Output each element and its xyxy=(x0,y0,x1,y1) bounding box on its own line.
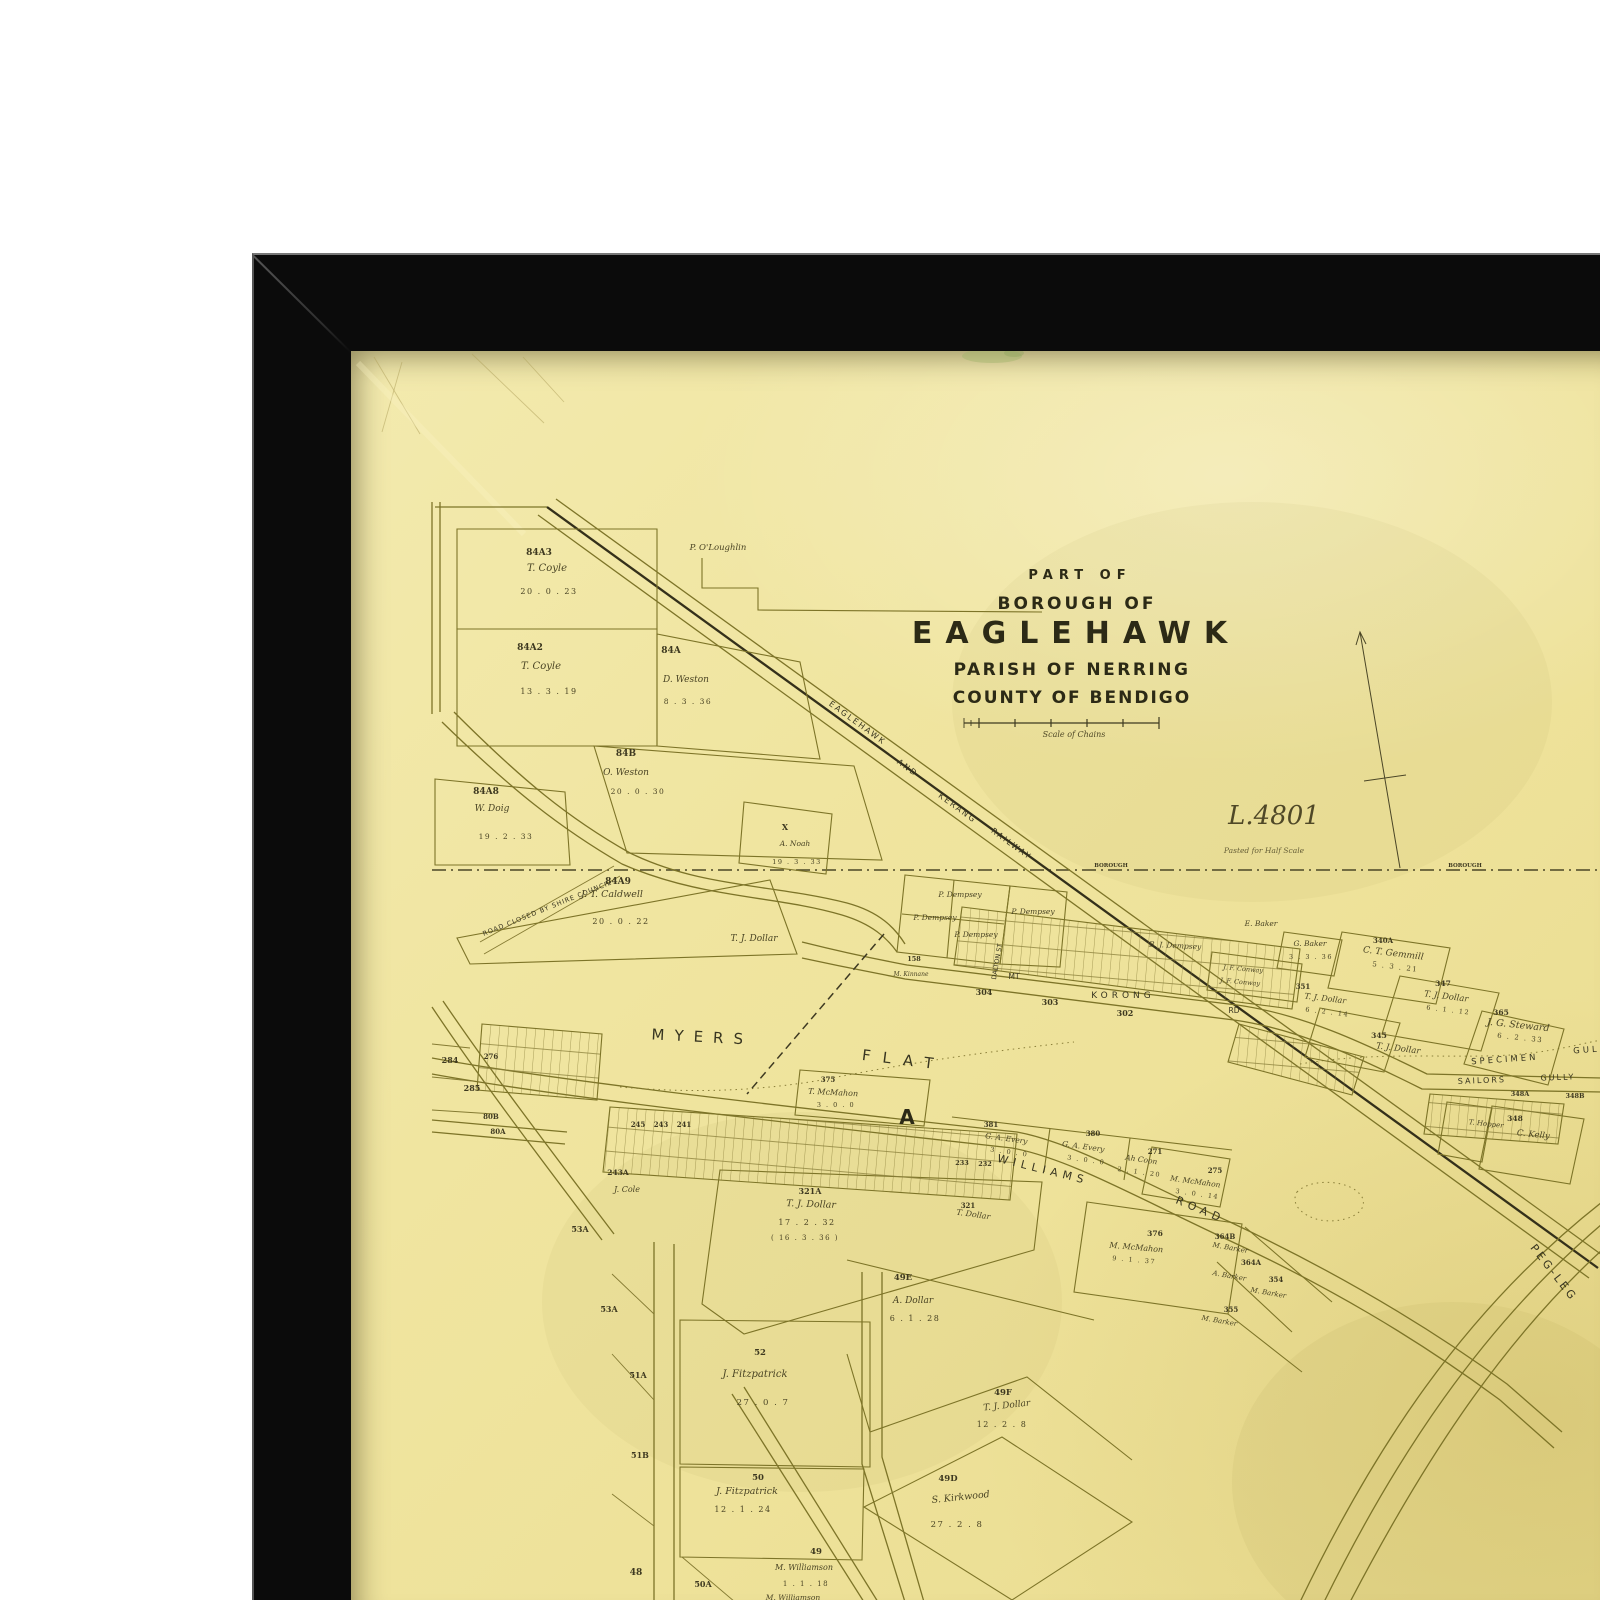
parcel-owner-label: E. Baker xyxy=(1244,919,1278,928)
parcel-owner-label: D. Weston xyxy=(662,675,709,685)
lot-number: 348A xyxy=(1511,1090,1531,1098)
lot-number: 50A xyxy=(694,1579,712,1589)
boundary-label-1: BOROUGH xyxy=(1094,863,1128,869)
lot-number: 364A xyxy=(1241,1258,1262,1267)
picture-frame: PART OF BOROUGH OF EAGLEHAWK PARISH OF N… xyxy=(252,253,1600,1600)
place-myers: MYERS xyxy=(651,1025,753,1048)
parcel-area-label: 3 . 3 . 36 xyxy=(1289,953,1333,961)
lot-number: 302 xyxy=(1117,1008,1134,1018)
boundary-label-2: BOROUGH xyxy=(1448,863,1482,869)
lot-number: 84A3 xyxy=(526,548,552,558)
parcel-owner-label: T. J. Dollar xyxy=(1376,1041,1422,1056)
parcel-owner-label: M. McMahon xyxy=(1108,1241,1164,1255)
place-specimen: SPECIMEN xyxy=(1471,1053,1539,1068)
lot-number: 233 xyxy=(955,1159,969,1167)
road-korong: KORONG xyxy=(1091,991,1155,1001)
parcel-area-label: 27 . 0 . 7 xyxy=(737,1398,790,1408)
lot-number: 345 xyxy=(1371,1031,1387,1040)
road-sailors-gully: GULLY xyxy=(1540,1072,1575,1082)
lot-number: 49D xyxy=(938,1474,958,1484)
parcel-area-label: 1 . 1 . 18 xyxy=(783,1580,829,1588)
parcel-area-label: 12 . 2 . 8 xyxy=(977,1420,1028,1429)
lot-number: 375 xyxy=(821,1075,836,1084)
lot-number: 48 xyxy=(630,1568,643,1578)
road-closed-note: ROAD CLOSED BY SHIRE COUNCIL xyxy=(482,878,613,937)
lot-number: 321 xyxy=(961,1201,976,1210)
parcel-owner-label: M. Williamson xyxy=(765,1593,821,1600)
railway-word-2: AND xyxy=(895,757,919,778)
parcel-area-label: 6 . 2 . 33 xyxy=(1497,1032,1544,1045)
lot-number: 245 xyxy=(631,1120,646,1129)
lot-number: 364B xyxy=(1215,1232,1236,1241)
lot-number: 53A xyxy=(571,1224,589,1234)
lot-number: 84A9 xyxy=(605,877,631,887)
frame-miter-joint xyxy=(253,255,352,353)
parcel-owner-label: P. Dempsey xyxy=(912,913,957,922)
parcel-area-label: 19 . 2 . 33 xyxy=(479,832,534,841)
parcel-area-label: 6 . 1 . 28 xyxy=(890,1314,941,1323)
parcel-area-label: 19 . 3 . 33 xyxy=(772,858,822,866)
lot-number: 348 xyxy=(1507,1114,1523,1123)
lot-number: 355 xyxy=(1224,1305,1239,1314)
parcel-owner-label: T. Coyle xyxy=(521,661,561,672)
lot-number: 49E xyxy=(894,1273,913,1283)
lot-number: 271 xyxy=(1148,1147,1163,1156)
parcel-owner-label: A. Dollar xyxy=(892,1296,934,1306)
map-artwork: PART OF BOROUGH OF EAGLEHAWK PARISH OF N… xyxy=(351,351,1600,1600)
parcel-owner-label: T. Coyle xyxy=(527,563,567,574)
lot-number: 243 xyxy=(654,1120,669,1129)
plan-number-label: L.4801 xyxy=(1227,801,1320,831)
lot-number: 84A xyxy=(661,646,682,656)
parcel-area-label: 20 . 0 . 23 xyxy=(520,587,577,596)
parcel-owner-label: P. Dempsey xyxy=(1010,907,1055,916)
lot-number: 376 xyxy=(1147,1229,1163,1238)
parcel-area-label: 2 . 1 . 20 xyxy=(1117,1165,1162,1179)
lot-number: 381 xyxy=(984,1120,999,1129)
lot-number: 49 xyxy=(810,1547,822,1557)
parcel-owner-label: A. Barker xyxy=(1211,1269,1247,1283)
parcel-owner-label: C. T. Gemmill xyxy=(1362,945,1424,962)
road-mt: MT xyxy=(1008,972,1019,981)
map-paper: PART OF BOROUGH OF EAGLEHAWK PARISH OF N… xyxy=(351,351,1600,1600)
lot-number: 276 xyxy=(484,1052,499,1061)
parcel-area-label: 17 . 2 . 32 xyxy=(778,1218,835,1227)
parcel-area-label: 6 . 2 . 14 xyxy=(1305,1005,1350,1018)
half-scale-note: Pasted for Half Scale xyxy=(1223,846,1305,855)
lot-number: 50 xyxy=(752,1473,764,1483)
map-title-county: COUNTY OF BENDIGO xyxy=(953,688,1191,708)
parcel-owner-label: M. Kinnane xyxy=(892,971,929,978)
map-title-part-of: PART OF xyxy=(1028,568,1131,583)
lot-number: 304 xyxy=(976,987,993,997)
lot-number: 80B xyxy=(483,1112,499,1121)
parcel-owner-label: G. A. Every xyxy=(1062,1139,1106,1154)
parcel-owner-label: J. Fitzpatrick xyxy=(720,1369,787,1380)
lot-number: 351 xyxy=(1296,982,1311,991)
map-title-name: EAGLEHAWK xyxy=(912,616,1240,651)
place-gully: GULLY xyxy=(1573,1044,1600,1057)
lot-number: 158 xyxy=(907,955,921,963)
parcel-owner-label: J. G. Steward xyxy=(1484,1017,1550,1035)
parcel-area-label: 5 . 3 . 21 xyxy=(1372,960,1419,974)
lot-number: 53A xyxy=(600,1304,618,1314)
lot-number: 275 xyxy=(1208,1166,1223,1175)
parcel-area-label: 12 . 1 . 24 xyxy=(714,1505,771,1514)
road-sailors: SAILORS xyxy=(1458,1075,1506,1086)
parcel-owner-label: A. Noah xyxy=(779,839,811,848)
lot-number: 51A xyxy=(629,1370,647,1380)
parcel-owner-label: T. J. Dollar xyxy=(1304,992,1348,1006)
map-title-borough-of: BOROUGH OF xyxy=(998,594,1157,614)
parcel-owner-label: P. Dempsey xyxy=(953,930,998,939)
parcel-owner-label: O. Weston xyxy=(603,768,649,778)
parcel-area-label: 6 . 1 . 12 xyxy=(1426,1003,1471,1016)
parcel-owner-label: M. Barker xyxy=(1211,1241,1249,1255)
parcel-owner-label: S. Kirkwood xyxy=(931,1489,990,1506)
lot-number: 232 xyxy=(978,1160,992,1168)
parcel-owner-label: J. T. Caldwell xyxy=(579,889,643,900)
parcel-area-label: 3 . 0 . 0 xyxy=(817,1101,855,1109)
parcel-area-label: 8 . 3 . 36 xyxy=(664,697,712,706)
parcel-owner-label: T. J. Dollar xyxy=(1424,989,1470,1004)
lot-number: 347 xyxy=(1435,979,1451,988)
lot-number: 303 xyxy=(1042,997,1059,1007)
parcel-area-label: 27 . 2 . 8 xyxy=(931,1520,984,1530)
lot-number: 348B xyxy=(1565,1092,1585,1100)
lot-number: 285 xyxy=(464,1083,481,1093)
map-title-parish: PARISH OF NERRING xyxy=(954,660,1191,680)
lot-number: 241 xyxy=(677,1120,692,1129)
product-photo: PART OF BOROUGH OF EAGLEHAWK PARISH OF N… xyxy=(0,0,1600,1600)
parcel-owner-label: P. O'Loughlin xyxy=(689,543,747,553)
parcel-owner-label: G. Baker xyxy=(1293,939,1326,948)
place-flat: FLAT xyxy=(861,1046,946,1074)
railway-word-1: EAGLEHAWK xyxy=(827,699,888,746)
lot-number: 84A8 xyxy=(473,787,499,797)
lot-number: 52 xyxy=(754,1348,766,1358)
lot-number: 321A xyxy=(799,1186,823,1196)
place-section-a: A xyxy=(899,1105,915,1129)
lot-number: 354 xyxy=(1269,1275,1284,1284)
parcel-area-label: 13 . 3 . 19 xyxy=(520,687,577,696)
scale-caption: Scale of Chains xyxy=(1043,730,1106,739)
parcel-owner-label: M. Williamson xyxy=(774,1563,833,1572)
lot-number: 284 xyxy=(442,1055,459,1065)
parcel-owner-label: J. Cole xyxy=(612,1185,640,1194)
parcel-owner-label: M. Barker xyxy=(1249,1286,1287,1300)
lot-number: 380 xyxy=(1086,1129,1101,1138)
parcel-owner-label: T. McMahon xyxy=(808,1087,858,1099)
parcel-area-label: 9 . 1 . 37 xyxy=(1112,1254,1156,1266)
lot-number: 84A2 xyxy=(517,643,543,653)
lot-number: 49F xyxy=(994,1388,1012,1398)
lot-number: X xyxy=(782,822,789,832)
road-rd: RD xyxy=(1229,1006,1240,1015)
parcel-area-label: 20 . 0 . 22 xyxy=(592,917,649,926)
lot-number: 80A xyxy=(490,1127,506,1136)
lot-number: 51B xyxy=(631,1450,649,1460)
lot-number: 365 xyxy=(1493,1008,1509,1017)
lot-number: 243A xyxy=(607,1168,629,1177)
parcel-area-label: 3 . 0 . 0 xyxy=(1067,1153,1106,1166)
parcel-owner-label: W. Doig xyxy=(475,804,510,814)
parcel-subarea-label: ( 16 . 3 . 36 ) xyxy=(771,1234,839,1242)
lot-number: 84B xyxy=(616,749,637,759)
parcel-area-label: 20 . 0 . 30 xyxy=(611,787,666,796)
parcel-owner-label: T. J. Dollar xyxy=(786,1198,838,1211)
lot-number: 340A xyxy=(1373,936,1394,945)
parcel-owner-label: J. Fitzpatrick xyxy=(714,1486,778,1497)
parcel-owner-label: T. J. Dollar xyxy=(730,934,778,944)
parcel-owner-label: P. Dempsey xyxy=(937,890,982,899)
parcel-owner-label: M. Barker xyxy=(1200,1314,1238,1328)
